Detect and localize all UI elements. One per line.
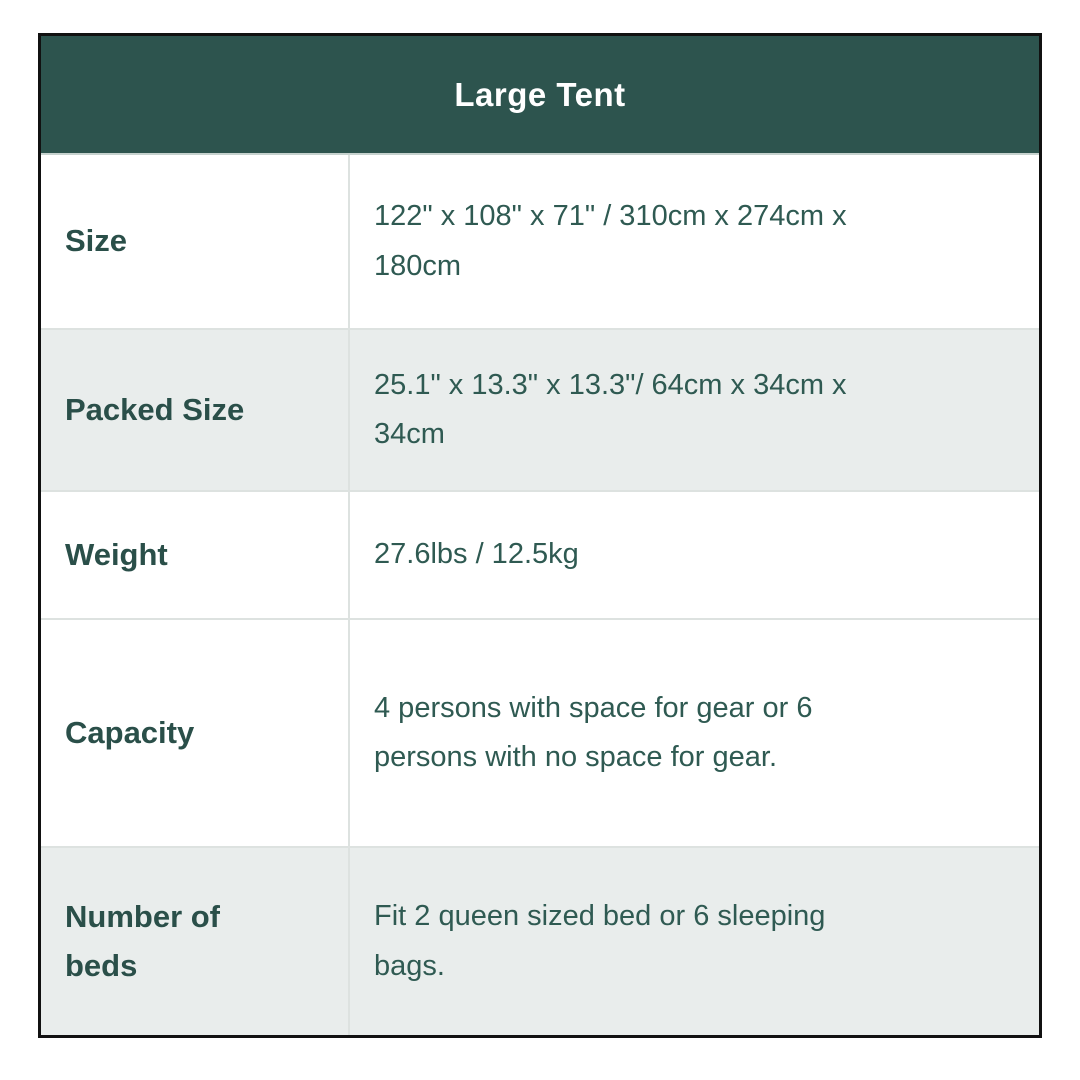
row-label: Number of beds: [41, 848, 350, 1035]
row-label: Packed Size: [41, 330, 350, 490]
spec-row-number-of-beds: Number of beds Fit 2 queen sized bed or …: [41, 846, 1039, 1035]
row-value: 4 persons with space for gear or 6 perso…: [350, 620, 1039, 846]
spec-row-packed-size: Packed Size 25.1" x 13.3" x 13.3"/ 64cm …: [41, 328, 1039, 490]
row-value: 122" x 108" x 71" / 310cm x 274cm x 180c…: [350, 155, 1039, 328]
row-value: Fit 2 queen sized bed or 6 sleeping bags…: [350, 848, 1039, 1035]
row-value: 27.6lbs / 12.5kg: [350, 492, 1039, 618]
row-label: Weight: [41, 492, 350, 618]
row-value: 25.1" x 13.3" x 13.3"/ 64cm x 34cm x 34c…: [350, 330, 1039, 490]
spec-row-capacity: Capacity 4 persons with space for gear o…: [41, 618, 1039, 846]
spec-row-size: Size 122" x 108" x 71" / 310cm x 274cm x…: [41, 155, 1039, 328]
row-label: Capacity: [41, 620, 350, 846]
row-label: Size: [41, 155, 350, 328]
spec-row-weight: Weight 27.6lbs / 12.5kg: [41, 490, 1039, 618]
tent-spec-table: Large Tent Size 122" x 108" x 71" / 310c…: [38, 33, 1042, 1038]
table-header: Large Tent: [41, 36, 1039, 155]
table-title: Large Tent: [454, 76, 625, 114]
